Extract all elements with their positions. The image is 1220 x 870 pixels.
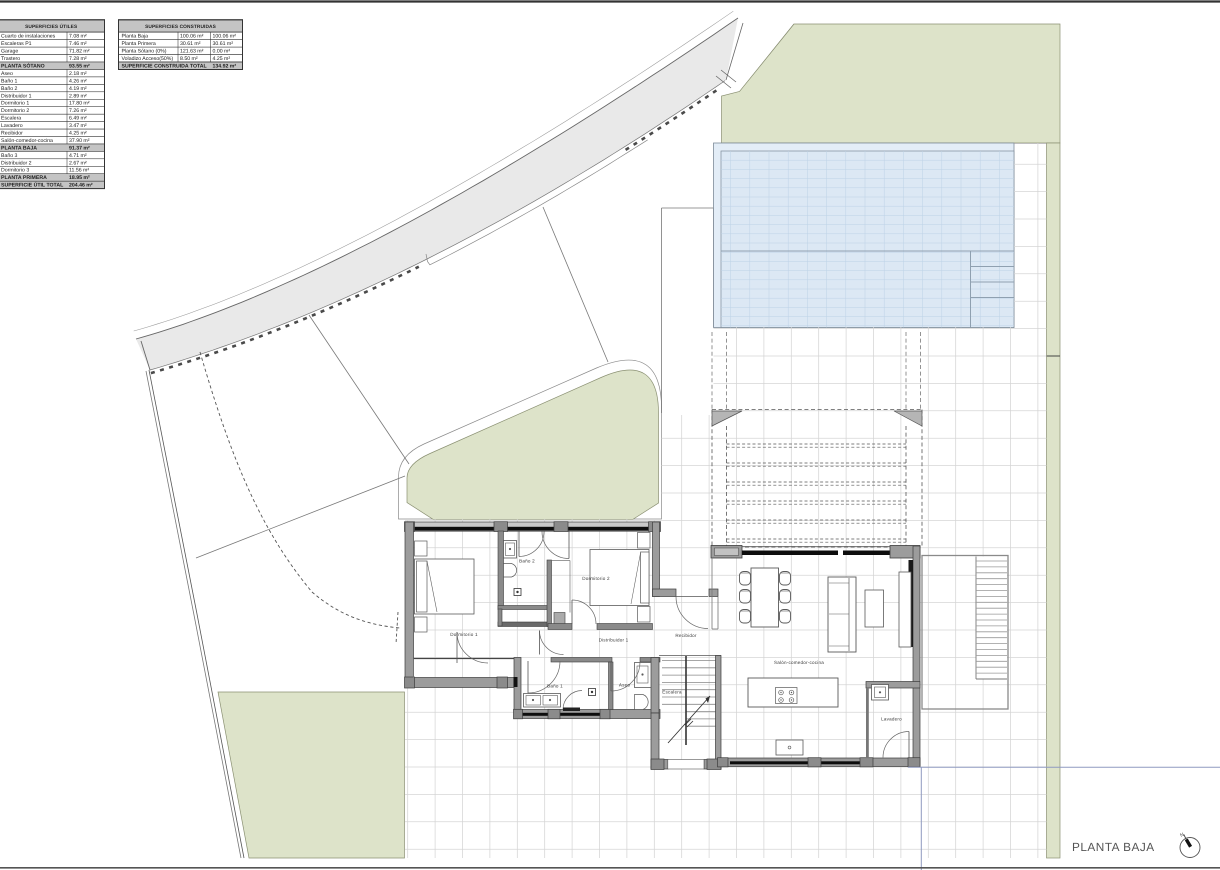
svg-text:Distribuidor 2: Distribuidor 2 bbox=[1, 160, 32, 166]
svg-text:SUPERFICIE CONSTRUIDA TOTAL: SUPERFICIE CONSTRUIDA TOTAL bbox=[122, 64, 208, 70]
svg-text:Salón-comedor-cocina: Salón-comedor-cocina bbox=[1, 138, 53, 144]
svg-text:SUPERFICIES CONSTRUIDAS: SUPERFICIES CONSTRUIDAS bbox=[145, 24, 216, 30]
svg-text:PLANTA BAJA: PLANTA BAJA bbox=[1, 145, 37, 151]
svg-text:6.49 m²: 6.49 m² bbox=[69, 116, 87, 122]
svg-text:Garage: Garage bbox=[1, 49, 18, 55]
svg-text:Baño 3: Baño 3 bbox=[1, 153, 18, 159]
svg-text:4.26 m²: 4.26 m² bbox=[69, 78, 87, 84]
svg-text:4.19 m²: 4.19 m² bbox=[69, 86, 87, 92]
svg-text:Escalera: Escalera bbox=[662, 690, 682, 695]
svg-text:4.25 m²: 4.25 m² bbox=[69, 131, 87, 137]
svg-text:Lavadero: Lavadero bbox=[881, 717, 902, 722]
svg-text:Voladizo Acceso(50%): Voladizo Acceso(50%) bbox=[122, 56, 174, 62]
svg-text:100.06 m²: 100.06 m² bbox=[213, 34, 237, 40]
svg-text:7.28 m²: 7.28 m² bbox=[69, 56, 87, 62]
svg-text:7.26 m²: 7.26 m² bbox=[69, 108, 87, 114]
svg-text:PLANTA SÓTANO: PLANTA SÓTANO bbox=[1, 63, 45, 70]
svg-text:Baño 2: Baño 2 bbox=[1, 86, 18, 92]
svg-text:2.67 m²: 2.67 m² bbox=[69, 160, 87, 166]
svg-text:91.37 m²: 91.37 m² bbox=[69, 145, 90, 151]
svg-text:Planta Primera: Planta Primera bbox=[122, 41, 156, 47]
svg-text:Baño 1: Baño 1 bbox=[1, 78, 18, 84]
svg-text:Baño 1: Baño 1 bbox=[547, 684, 563, 689]
svg-text:18.95 m²: 18.95 m² bbox=[69, 175, 90, 181]
svg-text:Dormitorio 2: Dormitorio 2 bbox=[1, 108, 29, 114]
svg-text:Dormitorio 1: Dormitorio 1 bbox=[450, 632, 478, 637]
svg-text:11.56 m²: 11.56 m² bbox=[69, 168, 89, 174]
svg-text:0.00 m²: 0.00 m² bbox=[213, 49, 231, 55]
svg-text:PLANTA PRIMERA: PLANTA PRIMERA bbox=[1, 175, 47, 181]
svg-text:Escalera: Escalera bbox=[1, 116, 21, 122]
svg-text:7.46 m²: 7.46 m² bbox=[69, 41, 87, 47]
svg-text:71.82 m²: 71.82 m² bbox=[69, 49, 90, 55]
svg-text:37.90 m²: 37.90 m² bbox=[69, 138, 90, 144]
svg-text:100.06 m²: 100.06 m² bbox=[180, 34, 204, 40]
svg-text:7.08 m²: 7.08 m² bbox=[69, 34, 87, 40]
svg-text:30.61 m²: 30.61 m² bbox=[180, 41, 201, 47]
svg-text:Lavadero: Lavadero bbox=[1, 123, 23, 129]
svg-text:121.63 m²: 121.63 m² bbox=[180, 49, 204, 55]
svg-text:Dormitorio 2: Dormitorio 2 bbox=[582, 576, 610, 581]
svg-text:Aseo: Aseo bbox=[619, 683, 631, 688]
svg-text:Distribuidor 1: Distribuidor 1 bbox=[1, 93, 32, 99]
svg-text:93.55 m²: 93.55 m² bbox=[69, 64, 90, 70]
svg-text:Dormitorio 1: Dormitorio 1 bbox=[1, 101, 29, 107]
svg-text:Cuarto de instalaciones: Cuarto de instalaciones bbox=[1, 34, 56, 40]
svg-text:4.71 m²: 4.71 m² bbox=[69, 153, 87, 159]
svg-text:Distribuidor 1: Distribuidor 1 bbox=[599, 638, 629, 643]
svg-text:SUPERFICIE ÚTIL TOTAL: SUPERFICIE ÚTIL TOTAL bbox=[1, 182, 64, 189]
svg-text:30.61 m²: 30.61 m² bbox=[213, 41, 234, 47]
svg-text:SUPERFICIES ÚTILES: SUPERFICIES ÚTILES bbox=[25, 23, 78, 30]
svg-text:4.25 m²: 4.25 m² bbox=[213, 56, 231, 62]
svg-text:17.80 m²: 17.80 m² bbox=[69, 101, 90, 107]
svg-text:2.18 m²: 2.18 m² bbox=[69, 71, 87, 77]
svg-text:Recibidor: Recibidor bbox=[675, 633, 696, 638]
svg-text:Dormitorio 3: Dormitorio 3 bbox=[1, 168, 29, 174]
svg-text:Trastero: Trastero bbox=[1, 56, 20, 62]
svg-text:2.89 m²: 2.89 m² bbox=[69, 93, 87, 99]
svg-text:Salón-comedor-cocina: Salón-comedor-cocina bbox=[774, 660, 824, 665]
svg-text:Recibidor: Recibidor bbox=[1, 131, 23, 137]
svg-text:8.50 m²: 8.50 m² bbox=[180, 56, 198, 62]
svg-text:134.92 m²: 134.92 m² bbox=[213, 64, 237, 70]
svg-text:Baño 2: Baño 2 bbox=[519, 559, 535, 564]
svg-text:Aseo: Aseo bbox=[1, 71, 13, 77]
svg-text:PLANTA BAJA: PLANTA BAJA bbox=[1072, 840, 1155, 854]
svg-text:Planta Sótano (0%): Planta Sótano (0%) bbox=[122, 49, 167, 55]
svg-text:Planta Baja: Planta Baja bbox=[122, 34, 149, 40]
svg-text:3.47 m²: 3.47 m² bbox=[69, 123, 87, 129]
svg-text:204.46 m²: 204.46 m² bbox=[69, 183, 93, 189]
svg-text:Escaleras P1: Escaleras P1 bbox=[1, 41, 32, 47]
